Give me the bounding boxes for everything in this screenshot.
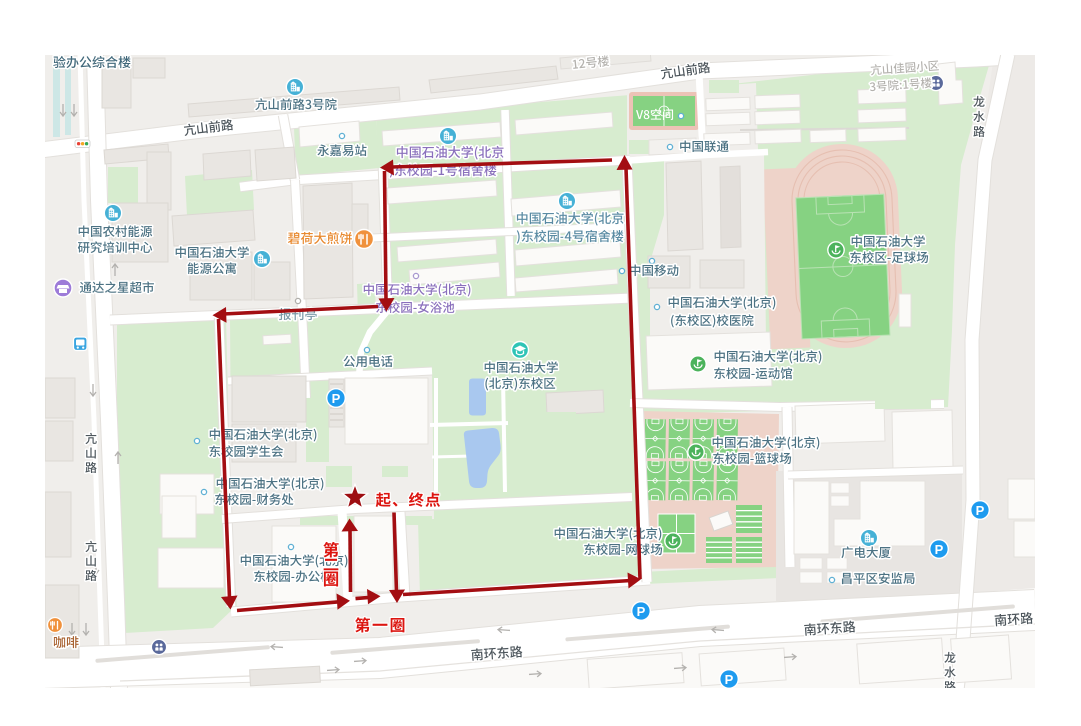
svg-text:P: P bbox=[725, 672, 734, 687]
svg-text:P: P bbox=[637, 604, 646, 619]
svg-text:P: P bbox=[935, 542, 944, 557]
svg-text:P: P bbox=[332, 391, 341, 406]
svg-text:P: P bbox=[976, 503, 985, 518]
